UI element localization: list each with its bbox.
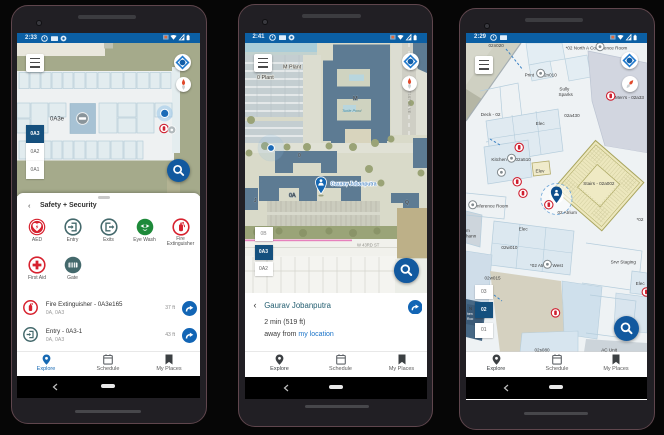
svg-text:*02: *02 <box>637 217 644 222</box>
svg-text:Gaurav Jobanputra: Gaurav Jobanputra <box>330 181 376 187</box>
svg-text:Kitchen: Kitchen <box>491 156 507 161</box>
svg-text:Roo: Roo <box>467 317 473 321</box>
svg-text:02n020: 02n020 <box>489 43 505 48</box>
svg-text:Srvr Staging: Srvr Staging <box>611 259 637 264</box>
svg-text:02w015: 02w015 <box>485 275 502 280</box>
svg-text:Sully: Sully <box>559 86 570 91</box>
svg-text:Elev: Elev <box>536 168 546 173</box>
svg-text:N: N <box>469 306 472 311</box>
svg-text:Deck - 02: Deck - 02 <box>481 111 501 116</box>
svg-text:hen: hen <box>467 312 473 316</box>
svg-text:151ST PL NE: 151ST PL NE <box>407 89 412 114</box>
svg-text:Turtle Pond: Turtle Pond <box>342 109 362 113</box>
svg-text:Stairs - 02a002: Stairs - 02a002 <box>583 181 615 186</box>
svg-text:02 Atrium: 02 Atrium <box>558 210 578 215</box>
svg-text:Sparks: Sparks <box>559 92 574 97</box>
svg-text:0 Plant: 0 Plant <box>257 75 274 81</box>
svg-text:02w010: 02w010 <box>501 245 518 250</box>
svg-text:M: M <box>353 96 358 102</box>
svg-text:2n010: 2n010 <box>544 72 557 77</box>
svg-text:Men's - 02a33: Men's - 02a33 <box>615 94 644 99</box>
svg-text:Elec: Elec <box>519 226 529 231</box>
svg-text:02a430: 02a430 <box>564 113 580 118</box>
svg-text:hann: hann <box>466 233 477 238</box>
svg-text:W 43RD ST: W 43RD ST <box>357 242 380 247</box>
svg-text:m: m <box>466 228 470 233</box>
svg-text:M Plant: M Plant <box>283 64 302 70</box>
svg-text:Elec: Elec <box>536 121 546 126</box>
svg-text:0A: 0A <box>289 193 296 199</box>
svg-text:Print: Print <box>525 72 535 77</box>
svg-text:02a510: 02a510 <box>516 156 532 161</box>
svg-text:0A3e: 0A3e <box>50 117 65 123</box>
svg-text:Q: Q <box>405 200 409 206</box>
svg-text:Elec: Elec <box>636 281 646 286</box>
svg-text:0: 0 <box>298 153 301 159</box>
